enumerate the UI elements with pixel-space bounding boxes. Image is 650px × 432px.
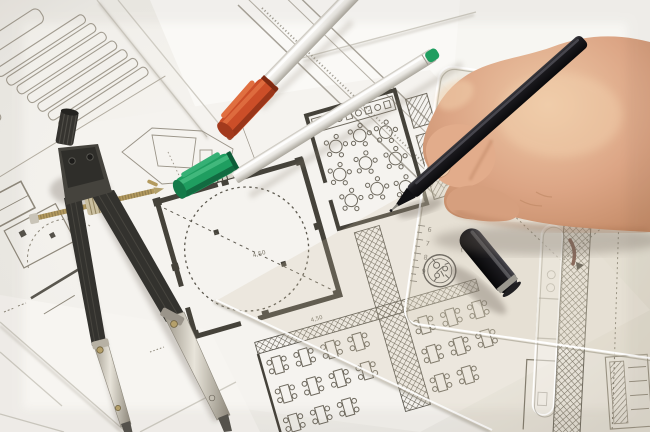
hand-highlight [498,73,622,157]
compass-screw-2 [171,321,178,328]
compass-screw [97,347,103,353]
compass-head-screw-2 [87,154,93,160]
photo-architect-desk: 4,50 [0,0,650,432]
compass-head-screw [69,158,75,164]
desk-scene: 4,50 [0,0,650,432]
